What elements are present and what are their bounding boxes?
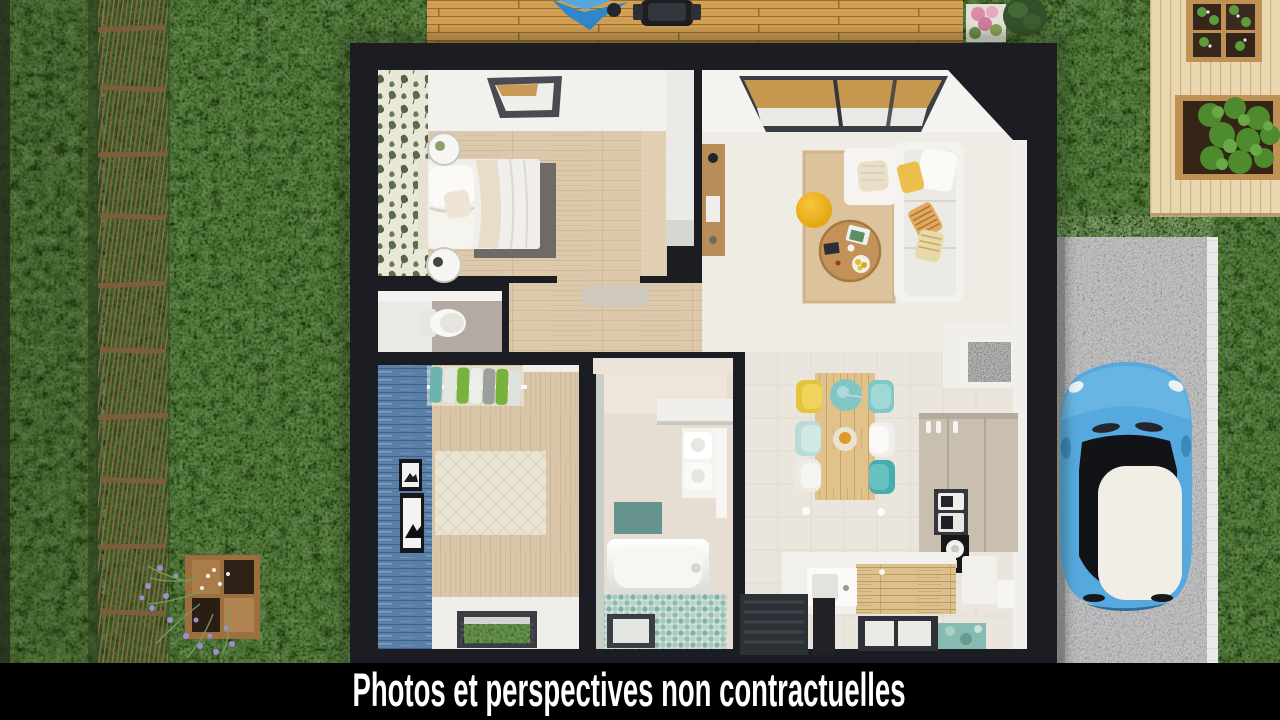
svg-text:Photos et perspectives non con: Photos et perspectives non contractuelle…: [353, 663, 906, 716]
